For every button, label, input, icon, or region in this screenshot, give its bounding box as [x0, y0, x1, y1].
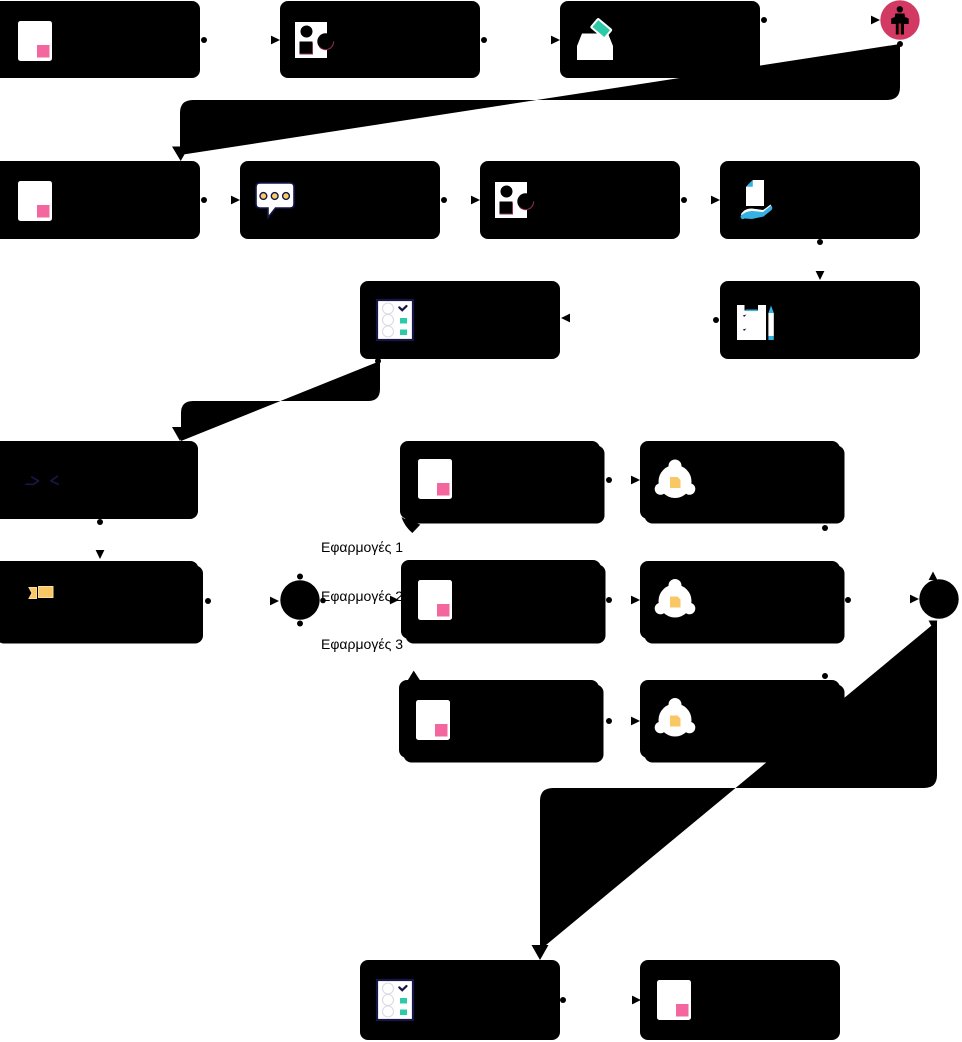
svg-text:Εφαρμογές 1: Εφαρμογές 1	[321, 539, 403, 555]
svg-text:Εφαρμογές 3: Εφαρμογές 3	[321, 636, 403, 652]
